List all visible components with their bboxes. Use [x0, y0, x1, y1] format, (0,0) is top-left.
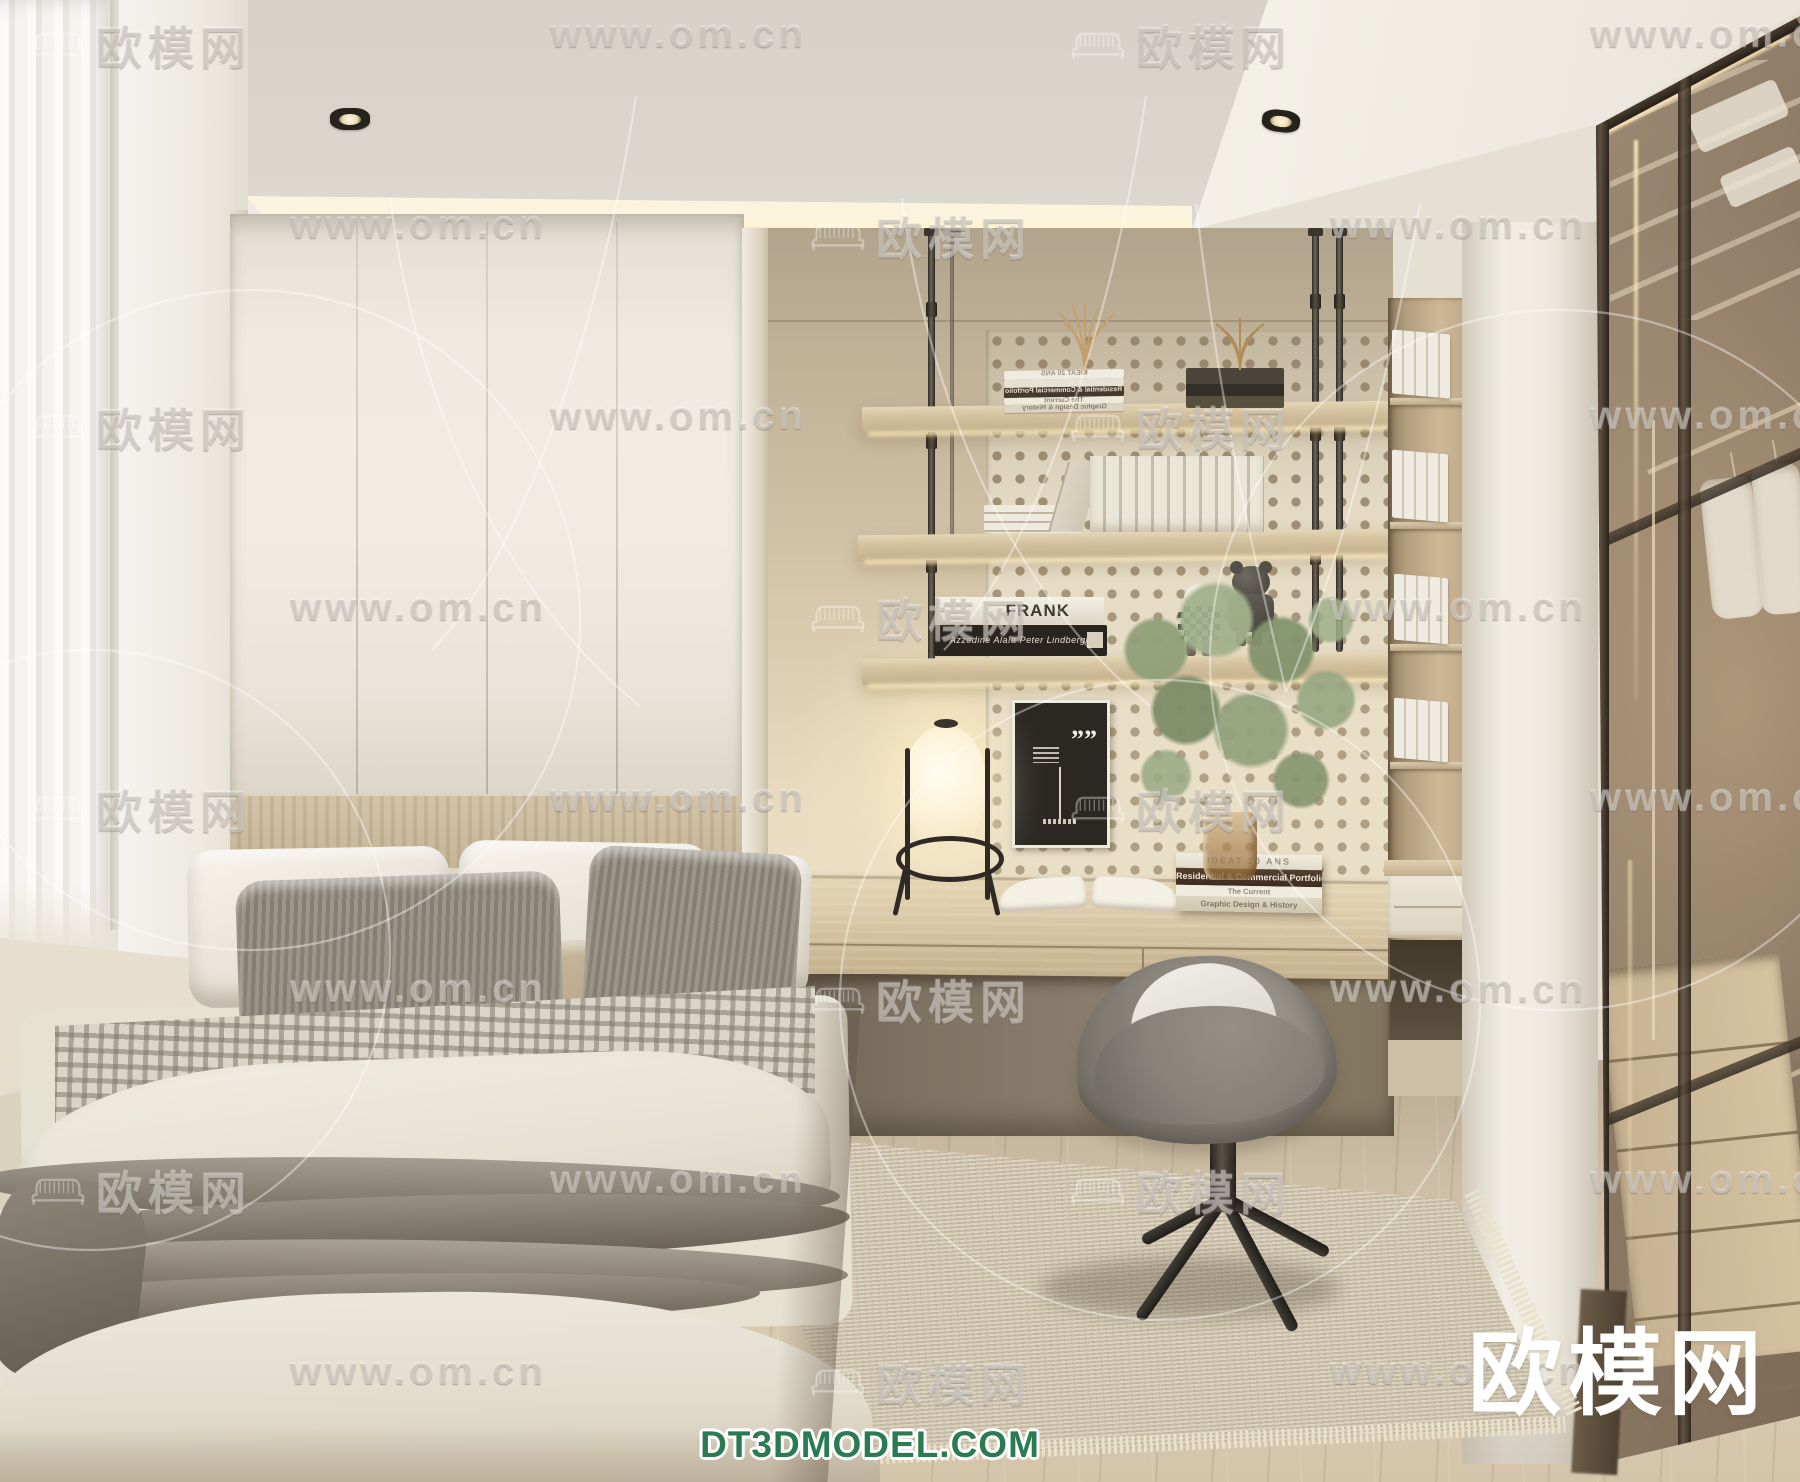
brand-logo-watermark: 欧模网	[1468, 1298, 1768, 1434]
footer-site-watermark: DT3DMODEL.COM	[700, 1424, 1040, 1466]
open-book	[998, 874, 1180, 916]
dried-grass-decor	[1210, 318, 1270, 377]
bedroom-render-scene: IDEAT 20 ANS Residential & Commercial Po…	[0, 0, 1800, 1482]
wall-shelf-middle	[858, 529, 1394, 562]
poster-illustration-base	[1043, 819, 1077, 824]
side-cabinet-body	[1388, 1040, 1468, 1096]
book-spine-lindbergh: Azzedine Alaïa Peter Lindbergh	[934, 625, 1107, 656]
poster-illustration	[1059, 767, 1061, 819]
shelf-hanging-rod	[928, 228, 935, 664]
gray-throw-blanket	[0, 0, 900, 1482]
book-row	[1090, 456, 1264, 532]
side-cabinet-opening	[1390, 940, 1468, 1040]
dried-grass-decor	[1050, 304, 1120, 381]
table-lamp-shade	[903, 726, 987, 848]
poster-quote-mark: ””	[1071, 735, 1097, 745]
glass-vase	[1203, 812, 1257, 880]
eucalyptus-plant	[1096, 580, 1362, 836]
book-spine-frank: FRANK	[938, 597, 1104, 624]
nook-books	[1392, 329, 1450, 398]
shelf-hanging-rod	[950, 228, 954, 540]
wall-shelf-top	[862, 401, 1394, 433]
nook-books	[1394, 574, 1448, 645]
nook-books	[1394, 698, 1448, 763]
side-cabinet-drawer	[1388, 876, 1468, 938]
nook-books	[1392, 450, 1448, 523]
chair-shadow	[1040, 1258, 1340, 1318]
poster-text-lines	[1033, 747, 1059, 763]
table-lamp-cap	[934, 719, 958, 728]
side-cabinet-top	[1384, 860, 1470, 876]
